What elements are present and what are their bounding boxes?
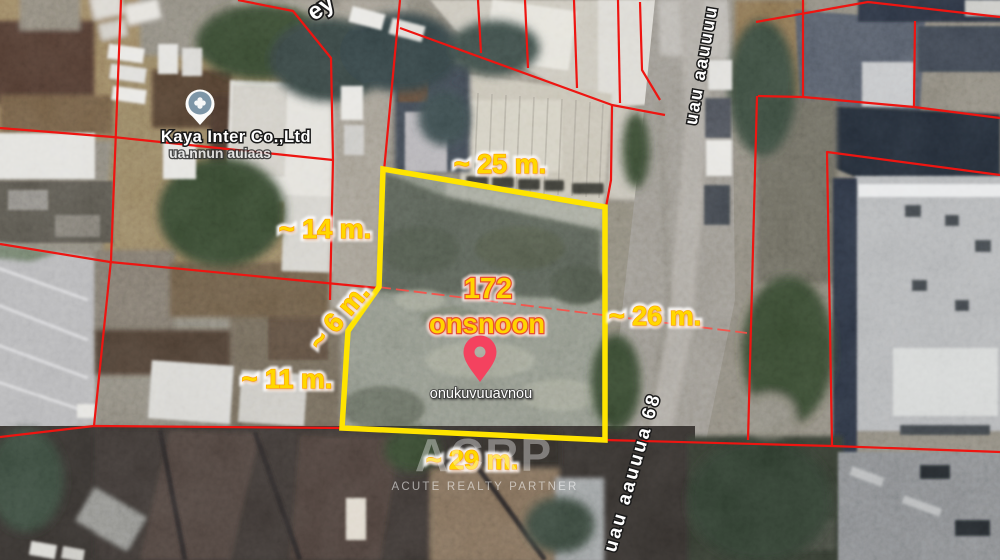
svg-text:ua.nnun auiaas: ua.nnun auiaas: [169, 145, 271, 161]
svg-text:ACRP: ACRP: [415, 429, 553, 481]
svg-text:onukuvuuavnou: onukuvuuavnou: [430, 386, 532, 402]
svg-text:~ 25 m.: ~ 25 m.: [454, 149, 546, 179]
svg-text:~ 14 m.: ~ 14 m.: [279, 214, 371, 244]
svg-text:~ 11 m.: ~ 11 m.: [242, 364, 333, 394]
svg-text:~ 26 m.: ~ 26 m.: [609, 301, 701, 331]
svg-text:Kaya Inter Co.,Ltd: Kaya Inter Co.,Ltd: [161, 128, 311, 146]
svg-text:ACUTE REALTY PARTNER: ACUTE REALTY PARTNER: [392, 481, 579, 493]
svg-text:onsnoon: onsnoon: [429, 308, 545, 339]
svg-text:172: 172: [464, 273, 512, 305]
